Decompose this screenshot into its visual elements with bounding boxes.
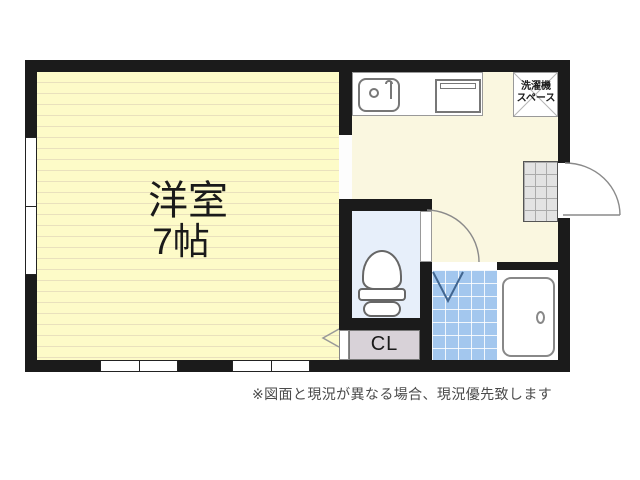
- wall-right-lower: [558, 218, 570, 372]
- stove-icon: [435, 79, 481, 113]
- stove-top-bar: [440, 83, 476, 89]
- bathtub-drain: [536, 311, 545, 324]
- window-bottom-1-divider: [139, 360, 140, 372]
- faucet-head: [385, 80, 393, 84]
- wall-toilet-bottom: [339, 318, 432, 330]
- wall-right-upper: [558, 60, 570, 163]
- wall-bottom-1: [25, 360, 100, 372]
- laundry-space-box: 洗濯機 スペース: [513, 72, 558, 117]
- wall-partition-room-kitchen: [339, 72, 352, 135]
- bathroom-door-threshold: [432, 262, 497, 270]
- wall-bathroom-top: [497, 262, 570, 270]
- sink-icon: [358, 78, 400, 112]
- laundry-label-line2: スペース: [510, 93, 562, 105]
- room-size-label: 7帖: [30, 222, 332, 262]
- wall-top: [25, 60, 570, 72]
- entrance-door-arc-icon: [563, 163, 620, 215]
- window-bottom-2-divider: [271, 360, 272, 372]
- disclaimer-text: ※図面と現況が異なる場合、現況優先致します: [252, 384, 582, 404]
- wall-toilet-left: [339, 199, 352, 330]
- laundry-label-line1: 洗濯機: [510, 81, 562, 93]
- genkan-tile: [523, 161, 558, 222]
- wall-toilet-top: [339, 199, 432, 211]
- wall-toilet-closet-right: [420, 262, 432, 372]
- toilet-icon: [358, 250, 406, 318]
- bathroom-tile-floor: [432, 270, 497, 360]
- toilet-door-gap: [420, 211, 432, 262]
- wall-bottom-3: [310, 360, 570, 372]
- floorplan-canvas: 洗濯機 スペース 洋: [0, 0, 640, 480]
- toilet-seat: [358, 288, 406, 301]
- entrance-door-gap: [558, 163, 570, 218]
- toilet-base: [363, 301, 401, 317]
- toilet-bowl: [362, 250, 402, 290]
- sink-drain: [369, 88, 379, 98]
- closet-label: CL: [349, 333, 420, 356]
- closet-door-panel: [339, 330, 349, 360]
- window-left-divider: [25, 206, 37, 207]
- room-label: 洋室: [37, 180, 339, 222]
- room-kitchen-opening: [339, 135, 352, 199]
- wall-left-lower: [25, 275, 37, 372]
- kitchen-counter: [352, 72, 483, 116]
- laundry-label: 洗濯機 スペース: [510, 81, 562, 105]
- wall-left-upper: [25, 60, 37, 137]
- wall-bottom-2: [178, 360, 232, 372]
- bathtub-icon: [502, 277, 555, 357]
